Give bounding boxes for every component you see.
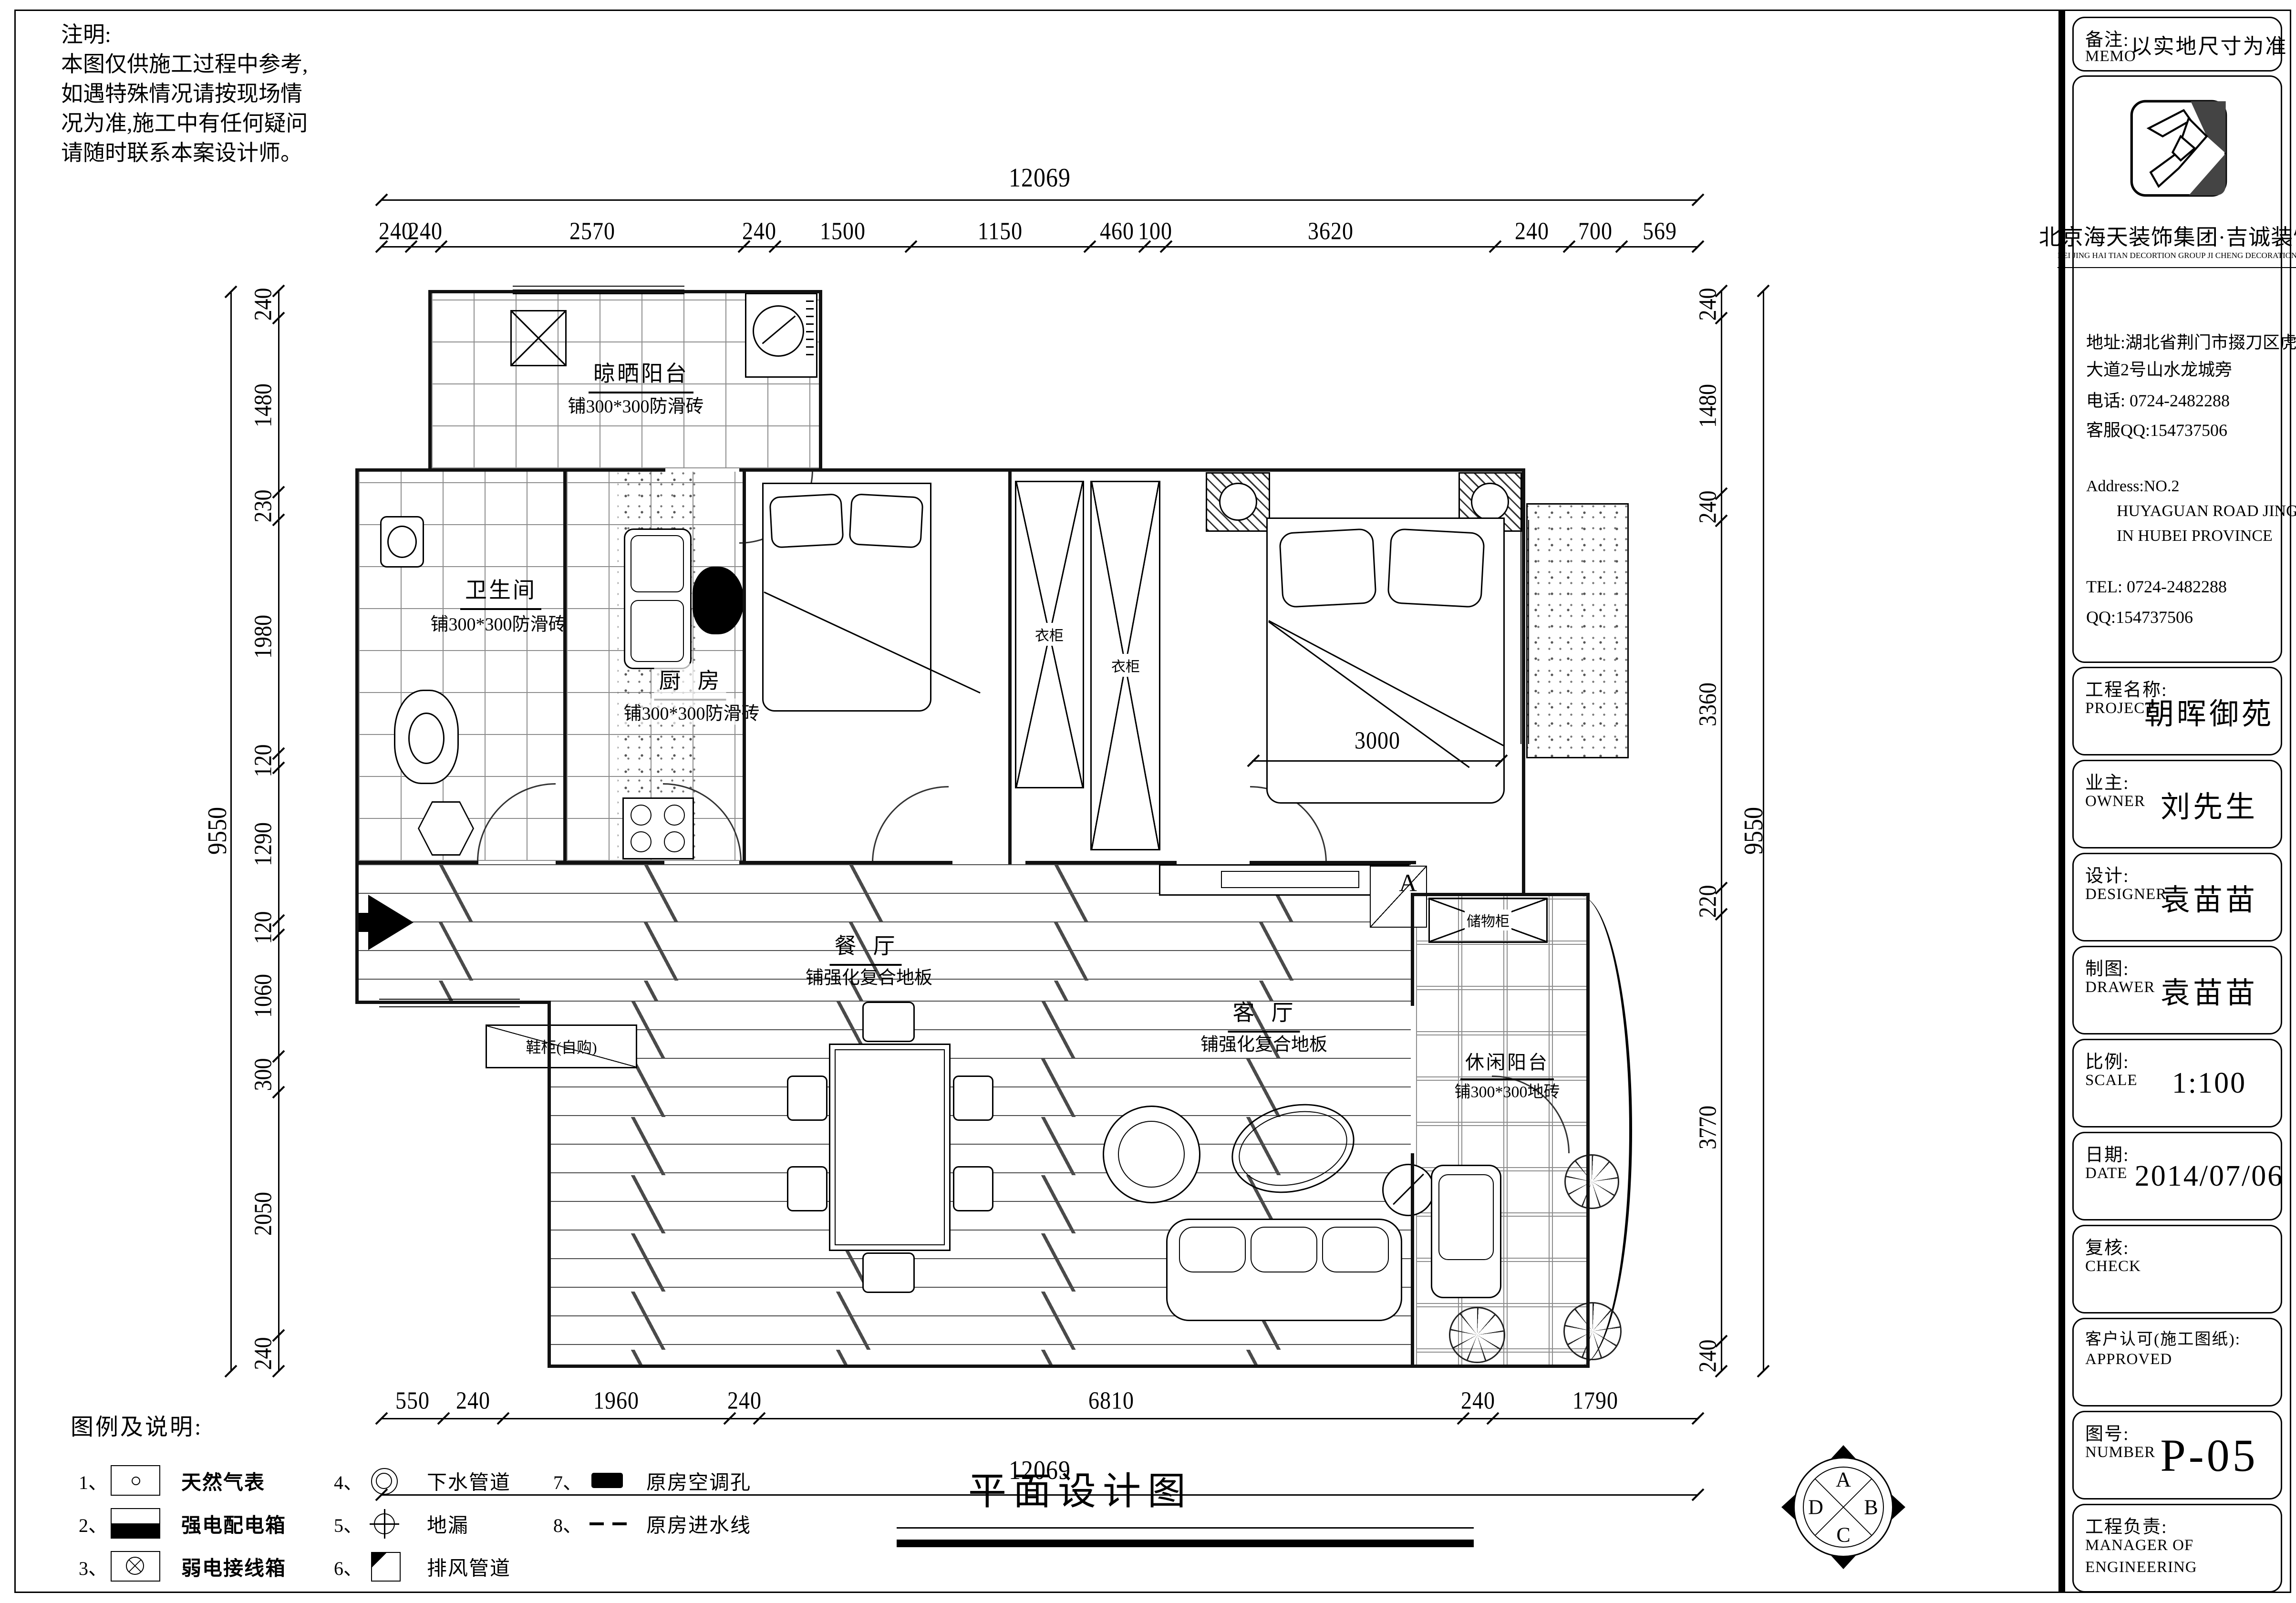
title-block-row: 制图:DRAWER袁苗苗 — [2072, 946, 2282, 1034]
room-sub-living: 铺强化复合地板 — [1200, 1030, 1327, 1056]
compass-letter-b: B — [1864, 1495, 1878, 1520]
row-label-en: MANAGER OF — [2085, 1537, 2193, 1554]
weak-current-box-icon — [111, 1551, 160, 1582]
nightstand-lamp — [1219, 483, 1257, 521]
row-label: 业主: — [2085, 768, 2130, 794]
dimension-line — [382, 1418, 1698, 1419]
wall — [556, 861, 664, 864]
row-value: 2014/07/06 — [2145, 1133, 2273, 1219]
compass-letter-c: C — [1836, 1523, 1850, 1547]
note-line: 如遇特殊情况请按现场情 — [61, 79, 395, 109]
dim-label: 1790 — [1572, 1386, 1618, 1414]
company-qq: QQ:154737506 — [2086, 607, 2193, 627]
row-value: 1:100 — [2145, 1040, 2273, 1126]
drawing-title: 平面设计图 — [968, 1460, 1192, 1516]
row-label-en: OWNER — [2085, 793, 2145, 810]
wall — [1586, 893, 1590, 1368]
dim-total-left: 9550 — [202, 807, 233, 855]
wall — [355, 1001, 551, 1004]
legend-label: 强电配电箱 — [181, 1510, 286, 1539]
room-name-bathroom: 卫生间 — [460, 573, 541, 610]
title-block-row: 业主:OWNER刘先生 — [2072, 760, 2282, 848]
wall — [563, 468, 567, 864]
title-underline-thin — [897, 1527, 1474, 1529]
drain-pipe-inner — [376, 1473, 392, 1489]
dimension-line — [278, 290, 279, 1371]
sofa-cushion — [1322, 1227, 1389, 1272]
dim-label: 3620 — [1308, 217, 1354, 245]
title-block-row: 图号:NUMBERP-05 — [2072, 1411, 2282, 1500]
dim-label: 700 — [1578, 217, 1613, 245]
wall — [1413, 893, 1590, 896]
room-sub-kitchen: 铺300*300防滑砖 — [623, 699, 759, 725]
wall — [743, 468, 746, 864]
row-label: 设计: — [2085, 861, 2130, 887]
dim-label: 1960 — [593, 1386, 639, 1414]
dim-label: 100 — [1138, 217, 1172, 245]
burner — [664, 831, 685, 852]
legend-no: 1、 — [79, 1467, 107, 1495]
legend-no: 4、 — [334, 1467, 362, 1495]
row-label: 比例: — [2085, 1047, 2130, 1073]
title-block-row: 工程负责:MANAGER OFENGINEERING — [2072, 1504, 2282, 1593]
row-value: 刘先生 — [2145, 761, 2273, 847]
dim-label: 240 — [1693, 1340, 1721, 1373]
dimension-line — [1763, 290, 1764, 1371]
drawing-notes: 注明: 本图仅供施工过程中参考, 如遇特殊情况请按现场情 况为准,施工中有任何疑… — [61, 20, 395, 168]
dimension-line — [230, 291, 232, 1371]
company-address-2: 大道2号山水龙城旁 — [2086, 356, 2232, 381]
legend-label: 排风管道 — [427, 1552, 511, 1582]
row-label: 日期: — [2085, 1140, 2130, 1166]
storage-cabinet-label: 储物柜 — [1465, 910, 1511, 931]
burner — [664, 805, 685, 826]
kitchen-sink-bowl — [631, 600, 684, 662]
legend-label: 弱电接线箱 — [181, 1552, 286, 1582]
dim-label: 230 — [248, 490, 277, 523]
plant — [1449, 1307, 1505, 1363]
balcony-armchair-cushion — [1438, 1174, 1494, 1260]
wall — [428, 290, 822, 293]
dim-label: 1480 — [1693, 384, 1721, 428]
dim-label: 240 — [1693, 288, 1721, 321]
dim-total-top: 12069 — [1009, 162, 1071, 193]
dim-label: 240 — [456, 1386, 490, 1414]
dim-label: 240 — [408, 217, 443, 245]
dim-label: 1150 — [978, 217, 1023, 245]
row-value: 袁苗苗 — [2145, 947, 2273, 1033]
squat-toilet-bowl — [408, 713, 445, 764]
wall — [428, 290, 432, 472]
row-label: 客户认可(施工图纸): — [2085, 1326, 2241, 1349]
row-label-en: CHECK — [2085, 1258, 2141, 1275]
weak-current-circle — [126, 1557, 144, 1575]
title-block-row: 日期:DATE2014/07/06 — [2072, 1132, 2282, 1220]
dim-label: 460 — [1100, 217, 1134, 245]
wall — [1522, 468, 1525, 896]
plant — [1563, 1302, 1622, 1360]
wall — [739, 861, 952, 864]
tv — [1221, 871, 1359, 888]
dim-label: 120 — [248, 745, 277, 777]
floor-drain-box — [510, 310, 567, 366]
row-label-en: DATE — [2085, 1165, 2127, 1182]
dimension-line — [382, 1494, 1698, 1496]
title-block-row: 复核:CHECK — [2072, 1225, 2282, 1313]
nightstand-lamp — [1471, 483, 1509, 521]
wall — [819, 290, 822, 472]
chair — [862, 1002, 915, 1042]
company-phone: 电话: 0724-2482288 — [2086, 387, 2230, 412]
gas-meter-dot — [132, 1477, 140, 1485]
dining-table-inner — [835, 1049, 945, 1245]
dim-label: 120 — [248, 911, 277, 944]
floor-drain-icon — [370, 1509, 399, 1539]
pillow — [1279, 528, 1377, 608]
stove — [622, 797, 694, 859]
dim-label: 3770 — [1693, 1106, 1721, 1149]
compass-letter-d: D — [1808, 1495, 1823, 1520]
memo-label-en: MEMO — [2085, 48, 2136, 65]
title-block-row: 比例:SCALE1:100 — [2072, 1039, 2282, 1127]
company-logo — [2129, 98, 2229, 198]
kitchen-sink-bowl — [631, 535, 684, 592]
wall — [355, 468, 665, 472]
dimension-line — [382, 199, 1698, 201]
chair — [787, 1076, 827, 1121]
dim-label: 240 — [1693, 491, 1721, 524]
company-name-en: BEI JING HAI TIAN DECORTION GROUP JI CHE… — [2058, 251, 2296, 268]
wardrobe-label: 衣柜 — [1110, 654, 1141, 677]
dim-label: 240 — [248, 288, 277, 321]
dim-label: 240 — [1461, 1386, 1495, 1414]
row-value: P-05 — [2145, 1412, 2273, 1498]
water-line-icon — [590, 1522, 631, 1525]
dim-label: 240 — [1515, 217, 1549, 245]
room-name-living: 客 厅 — [1228, 995, 1300, 1033]
bath-sink-bowl — [387, 526, 417, 558]
dim-label: 240 — [727, 1386, 762, 1414]
title-underline-thick — [897, 1540, 1474, 1547]
dim-total-right: 9550 — [1738, 807, 1769, 855]
power-box-icon — [111, 1508, 160, 1539]
memo-value: 以实地尺寸为准 — [2145, 18, 2273, 70]
bay-window — [1526, 503, 1629, 758]
dimension-line — [382, 246, 1698, 248]
dim-label: 1980 — [248, 615, 277, 659]
kitchen-faucet — [693, 567, 744, 634]
burner — [631, 831, 652, 852]
compass-letter-a: A — [1836, 1468, 1851, 1492]
dim-label: 1290 — [248, 822, 277, 866]
company-service-qq: 客服QQ:154737506 — [2086, 416, 2227, 441]
dimension-line — [1721, 290, 1722, 1371]
entry-arrow — [368, 895, 414, 950]
round-chair-inner — [1118, 1121, 1185, 1188]
legend-label: 原房进水线 — [646, 1510, 751, 1539]
row-label-en: DRAWER — [2085, 979, 2155, 996]
legend-label: 天然气表 — [181, 1467, 265, 1496]
floor-drain-cross — [384, 1509, 385, 1539]
dim-label: 300 — [248, 1058, 277, 1091]
dim-label: 240 — [742, 217, 776, 245]
dim-line-3000 — [1252, 760, 1502, 762]
memo-box: 备注: MEMO 以实地尺寸为准 — [2072, 17, 2282, 72]
legend-no: 6、 — [334, 1553, 362, 1581]
sofa-cushion — [1179, 1227, 1246, 1272]
note-title: 注明: — [61, 20, 395, 50]
note-line: 请随时联系本案设计师。 — [61, 138, 395, 168]
room-sub-drying-balcony: 铺300*300防滑砖 — [568, 392, 703, 418]
dim-label: 1060 — [248, 974, 277, 1018]
dim-label: 240 — [248, 1337, 277, 1370]
room-name-dining: 餐 厅 — [830, 929, 902, 966]
room-sub-dining: 铺强化复合地板 — [806, 963, 932, 989]
wall — [548, 1001, 551, 1368]
dim-label: 1500 — [820, 217, 866, 245]
dim-label: 220 — [1693, 885, 1721, 918]
company-name: 北京海天装饰集团·吉诚装饰 — [2039, 220, 2296, 251]
plant — [1564, 1154, 1619, 1209]
row-label-en2: ENGINEERING — [2085, 1559, 2197, 1576]
company-address-en3: IN HUBEI PROVINCE — [2117, 527, 2273, 545]
entry-arrow-tail — [359, 913, 369, 932]
wall — [1250, 861, 1416, 864]
wardrobe-label: 衣柜 — [1034, 623, 1065, 646]
washer-panel — [806, 300, 814, 358]
floor-plan-sheet: 注明: 本图仅供施工过程中参考, 如遇特殊情况请按现场情 况为准,施工中有任何疑… — [0, 0, 2296, 1603]
row-label: 工程负责: — [2085, 1512, 2168, 1538]
note-line: 本图仅供施工过程中参考, — [61, 50, 395, 79]
company-box: 北京海天装饰集团·吉诚装饰 BEI JING HAI TIAN DECORTIO… — [2072, 75, 2282, 663]
compass-rose: A B C D — [1781, 1445, 1905, 1569]
wall — [355, 861, 478, 864]
room-name-drying-balcony: 晾晒阳台 — [589, 356, 693, 393]
title-block-row: 客户认可(施工图纸):APPROVED — [2072, 1318, 2282, 1407]
gas-meter-icon — [111, 1465, 160, 1496]
title-block-row: 设计:DESIGNER袁苗苗 — [2072, 853, 2282, 941]
legend-title: 图例及说明: — [71, 1408, 203, 1441]
pedestal-basin-inner — [419, 803, 473, 854]
legend-no: 7、 — [553, 1467, 582, 1495]
wall — [355, 468, 359, 1004]
wall — [548, 1365, 1590, 1368]
burner — [631, 805, 652, 826]
pillow — [1387, 528, 1485, 608]
title-block-row: 工程名称:PROJECT朝晖御苑 — [2072, 667, 2282, 755]
legend-no: 8、 — [553, 1510, 582, 1538]
dim-label: 550 — [395, 1386, 430, 1414]
section-marker-a-box — [1370, 866, 1427, 928]
exhaust-duct-icon — [371, 1552, 401, 1582]
legend-no: 3、 — [79, 1553, 107, 1581]
room-name-leisure-balcony: 休闲阳台 — [1460, 1047, 1554, 1080]
row-label: 复核: — [2085, 1233, 2130, 1259]
row-value: 朝晖御苑 — [2145, 668, 2273, 754]
sofa-cushion — [1251, 1227, 1317, 1272]
chair — [787, 1166, 827, 1211]
row-label: 图号: — [2085, 1419, 2130, 1445]
legend-label: 下水管道 — [427, 1467, 511, 1496]
legend-label: 地漏 — [427, 1510, 469, 1539]
note-line: 况为准,施工中有任何疑问 — [61, 109, 395, 138]
company-tel: TEL: 0724-2482288 — [2086, 577, 2227, 597]
pillow — [848, 493, 923, 548]
dim-label: 3360 — [1693, 683, 1721, 726]
company-address-en2: HUYAGUAN ROAD JINGMEN — [2117, 502, 2296, 520]
wall — [1008, 468, 1012, 864]
row-label-en: SCALE — [2085, 1072, 2138, 1089]
row-label: 制图: — [2085, 954, 2130, 980]
legend-label: 原房空调孔 — [646, 1467, 751, 1496]
company-address-en1: Address:NO.2 — [2086, 477, 2179, 496]
row-label-en: APPROVED — [2085, 1351, 2172, 1368]
room-name-kitchen: 厨 房 — [654, 663, 726, 701]
chair — [953, 1166, 993, 1211]
wall — [1411, 1153, 1414, 1368]
dim-label-3000: 3000 — [1355, 726, 1400, 754]
wall — [739, 468, 1525, 472]
legend-no: 5、 — [334, 1510, 362, 1538]
dim-label: 2050 — [248, 1192, 277, 1236]
memo-label: 备注: — [2085, 25, 2130, 51]
wall — [1411, 893, 1414, 1006]
row-value: 袁苗苗 — [2145, 854, 2273, 940]
dim-label: 1480 — [248, 383, 277, 427]
room-sub-leisure-balcony: 铺300*300地砖 — [1455, 1079, 1560, 1102]
room-sub-bathroom: 铺300*300防滑砖 — [430, 610, 566, 636]
chair — [953, 1076, 993, 1121]
dim-label: 569 — [1643, 217, 1677, 245]
dim-label: 2570 — [569, 217, 615, 245]
wall — [1025, 861, 1177, 864]
dim-label: 6810 — [1088, 1386, 1134, 1414]
shoe-cabinet-label: 鞋柜(自购) — [526, 1035, 597, 1057]
ac-hole-icon — [591, 1473, 623, 1488]
chair — [862, 1252, 915, 1293]
legend-no: 2、 — [79, 1510, 107, 1538]
pillow — [769, 493, 844, 548]
company-address-1: 地址:湖北省荆门市掇刀区虎牙关 — [2086, 329, 2296, 353]
